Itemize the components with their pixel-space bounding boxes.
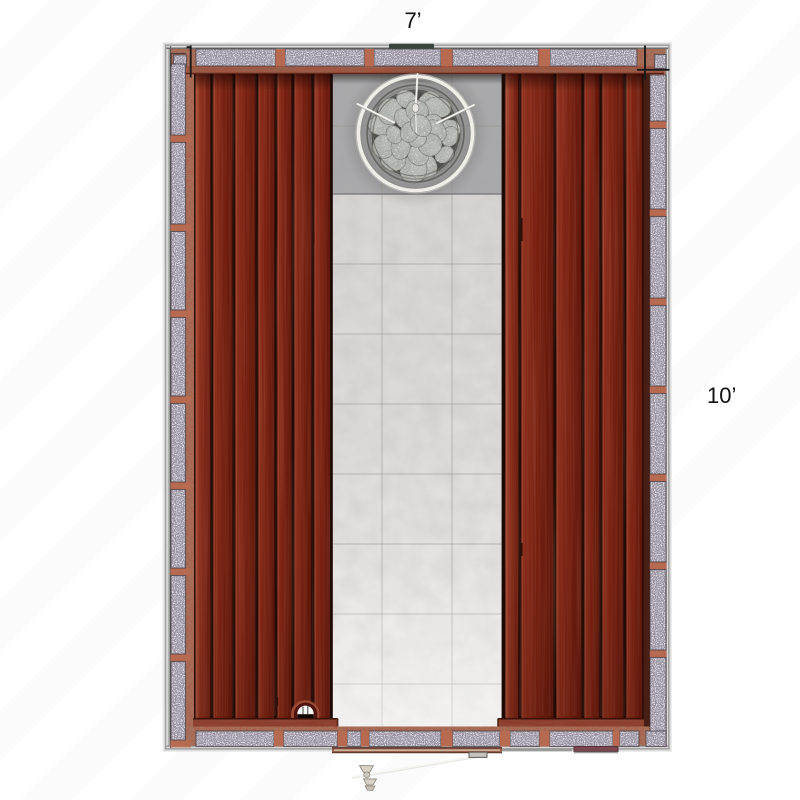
svg-text:7’: 7’ [404, 8, 421, 33]
svg-text:10’: 10’ [707, 383, 736, 408]
